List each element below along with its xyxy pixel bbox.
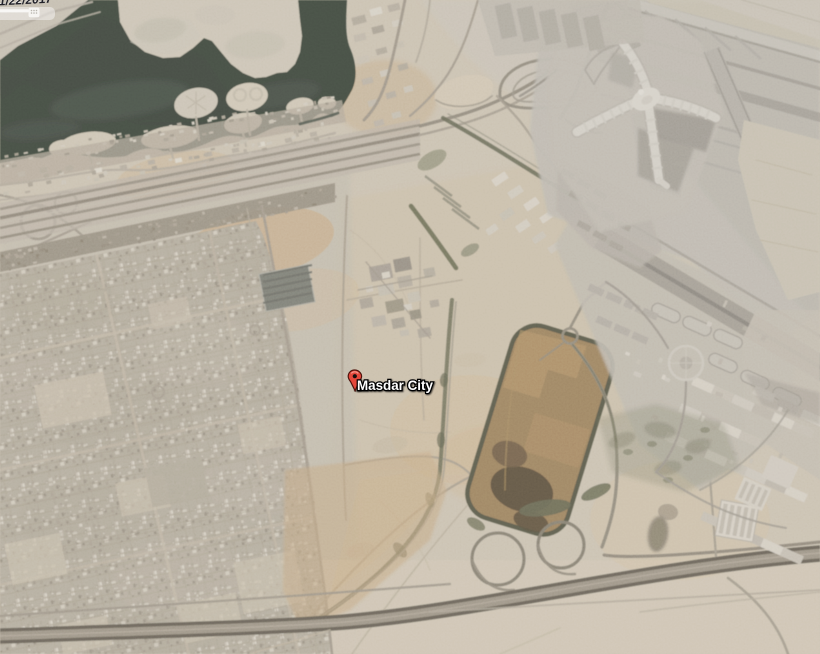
svg-text:Masdar City: Masdar City: [357, 378, 433, 393]
